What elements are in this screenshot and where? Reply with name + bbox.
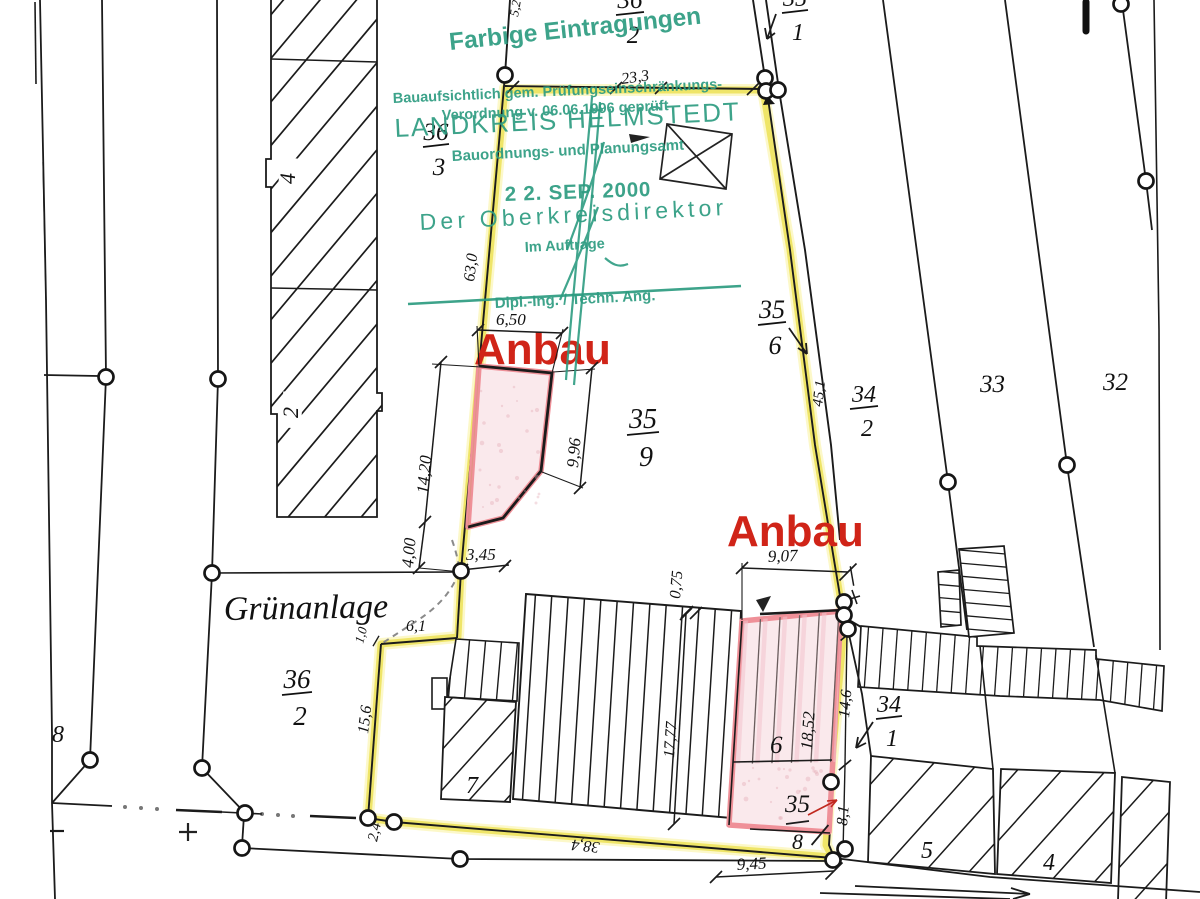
- svg-text:63,0: 63,0: [461, 253, 481, 283]
- svg-text:5,2: 5,2: [506, 0, 524, 18]
- svg-text:14,6: 14,6: [836, 689, 855, 718]
- svg-text:4: 4: [1043, 850, 1055, 876]
- svg-text:15,6: 15,6: [355, 705, 375, 735]
- svg-text:1: 1: [886, 726, 898, 752]
- svg-text:0,75: 0,75: [667, 570, 686, 599]
- svg-text:6: 6: [769, 331, 782, 360]
- svg-text:36: 36: [283, 664, 312, 694]
- svg-text:9,45: 9,45: [736, 853, 767, 874]
- svg-text:6,50: 6,50: [496, 310, 526, 329]
- svg-text:35: 35: [628, 404, 657, 435]
- svg-text:38,4: 38,4: [571, 836, 602, 856]
- svg-text:7: 7: [466, 773, 479, 799]
- svg-text:32: 32: [1102, 369, 1128, 396]
- svg-text:2: 2: [293, 701, 307, 731]
- svg-text:5: 5: [921, 838, 933, 864]
- svg-text:35: 35: [758, 295, 785, 324]
- svg-text:9,96: 9,96: [563, 437, 585, 469]
- svg-text:3: 3: [432, 154, 446, 181]
- svg-text:1: 1: [792, 20, 804, 46]
- svg-text:17,77: 17,77: [661, 720, 681, 758]
- svg-text:34: 34: [876, 692, 901, 718]
- svg-text:8,1: 8,1: [834, 805, 853, 826]
- svg-text:9,07: 9,07: [767, 546, 799, 566]
- svg-text:18,52: 18,52: [797, 710, 819, 750]
- svg-text:33: 33: [979, 371, 1005, 398]
- svg-text:2: 2: [278, 407, 303, 418]
- svg-text:Grünanlage: Grünanlage: [223, 588, 388, 628]
- svg-text:3,45: 3,45: [465, 545, 496, 564]
- svg-text:6: 6: [770, 732, 783, 759]
- svg-text:14,20: 14,20: [413, 454, 435, 494]
- svg-text:4: 4: [275, 173, 300, 184]
- svg-text:8: 8: [52, 722, 64, 748]
- svg-text:6,1: 6,1: [406, 618, 426, 635]
- svg-text:34: 34: [851, 382, 876, 408]
- svg-text:8: 8: [792, 829, 803, 854]
- svg-text:35: 35: [784, 791, 810, 818]
- svg-text:2: 2: [861, 416, 873, 442]
- svg-text:45,1: 45,1: [810, 379, 829, 407]
- svg-text:4,00: 4,00: [398, 537, 420, 569]
- svg-text:9: 9: [639, 442, 653, 473]
